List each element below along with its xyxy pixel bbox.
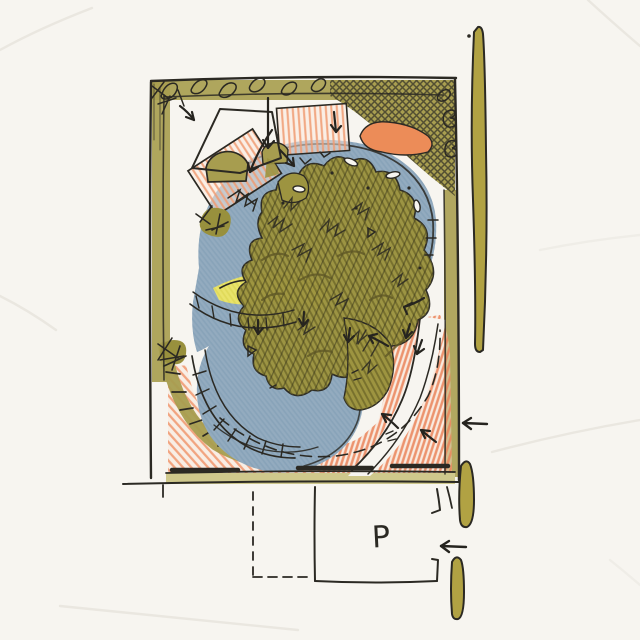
street-hedge-bar-lower xyxy=(451,557,464,619)
parking-left-line xyxy=(315,487,316,581)
dome-tree-large xyxy=(206,152,248,182)
scanned-sketch-page: P xyxy=(0,0,640,640)
garden-plan-drawing: P xyxy=(0,0,640,640)
left-hedge-border xyxy=(152,80,170,382)
parking-label: P xyxy=(371,520,391,556)
street-hedge-bar-upper xyxy=(459,461,474,527)
